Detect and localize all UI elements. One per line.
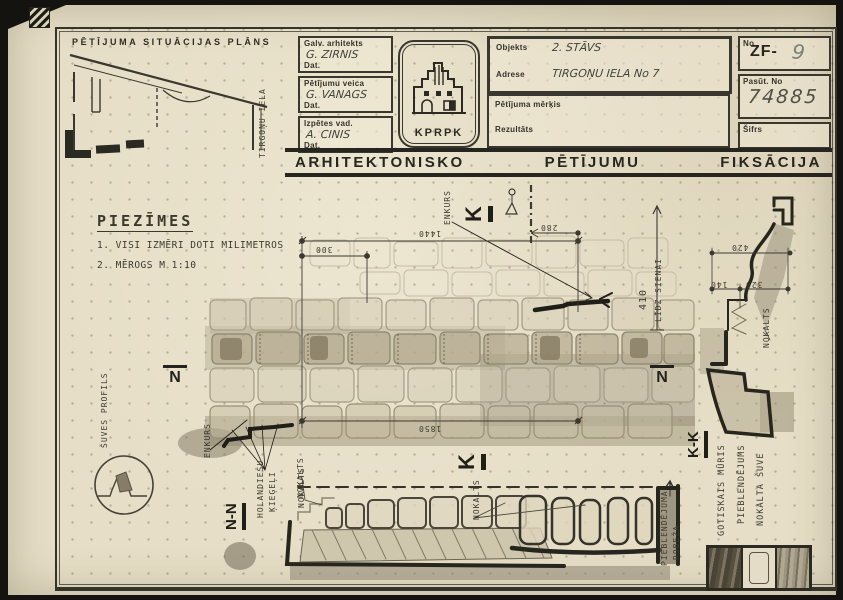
dim-300: 300 (315, 245, 332, 254)
signature-row: Pētījumu veica G. VANAGS Dat. (298, 76, 393, 113)
seam-profile-detail (95, 456, 153, 514)
banner-word: ARHITEKTONISKO (295, 154, 465, 171)
dim-420: 420 (731, 243, 748, 252)
legend-swatch-chiselled-seam (777, 548, 809, 588)
order-number-cell: Pasūt. No 74885 (738, 74, 831, 119)
robeza-label-line1: PIEBLENDĒJUMA (660, 490, 670, 566)
no-prefix: ZF- (750, 43, 778, 61)
dim-1440: 1440 (418, 229, 441, 238)
legend-box (706, 545, 812, 591)
pasut-value: 74885 (747, 86, 819, 108)
legend-label-infill: PIEBLENDĒJUMS (737, 444, 747, 524)
signature-role: Galv. arhitekts (304, 39, 387, 48)
logo-box: KPRPK (398, 40, 480, 148)
legend-label-chiselled-seam: NOKALTA ŠUVE (756, 453, 766, 526)
site-plan-title: PĒTĪJUMA SITUĀCIJAS PLĀNS (72, 37, 271, 47)
logo-text: KPRPK (400, 127, 478, 139)
legend-swatch-infill (743, 548, 777, 588)
rezultats-label: Rezultāts (495, 125, 533, 134)
number-block: No ZF- 9 Pasūt. No 74885 Šifrs (738, 36, 831, 149)
section-marker-kk: K-K (686, 431, 708, 458)
wall-dim-value: 410 (639, 289, 649, 310)
seam-profile-label: ŠUVES PROFILS (100, 372, 110, 448)
street-label: TIRGOŅU IELA (258, 88, 268, 158)
merkis-label: Pētījuma mērķis (495, 100, 561, 109)
section-marker-nn: N-N (224, 503, 246, 530)
holandiesu-label-line2: ĶIEĢEĻI (268, 471, 278, 512)
banner-word: PĒTĪJUMU (545, 154, 641, 171)
signature-name: G. VANAGS (305, 88, 367, 101)
date-label: Dat. (304, 101, 320, 110)
legend-swatch-gothic-wall (709, 548, 743, 588)
wall-dim-text: LĪDZ SIENAI (654, 258, 664, 322)
dim-1850: 1850 (418, 424, 441, 433)
adrese-label: Adrese (496, 70, 525, 79)
cipher-cell: Šifrs (738, 122, 831, 149)
section-marker-k-bottom: K (456, 454, 486, 470)
signature-role: Pētījumu veica (304, 79, 387, 88)
section-nn-drawing (224, 478, 678, 580)
nokalts-label-nn-mid: NOKALTS (472, 479, 482, 520)
banner-word: FIKSĀCIJA (720, 154, 822, 171)
dim-280: 280 (540, 223, 557, 232)
north-marker-left: N (163, 365, 187, 387)
signature-name: G. ZIRNIS (305, 48, 359, 61)
scanned-survey-sheet: PĒTĪJUMA SITUĀCIJAS PLĀNS TIRGOŅU IELA G… (0, 0, 843, 600)
building-icon (412, 51, 466, 117)
enkurs-label-left: ENKURS (203, 423, 213, 458)
enkurs-label-top: ENKURS (443, 190, 453, 225)
north-marker-right: N (650, 365, 674, 387)
purpose-box: Pētījuma mērķis Rezultāts (487, 94, 730, 148)
objekts-label: Objekts (496, 43, 527, 52)
sheet-number-cell: No ZF- 9 (738, 36, 831, 71)
registration-hatch-mark (29, 7, 50, 28)
plan-wall-fragments (65, 130, 144, 158)
signature-block: Galv. arhitekts G. ZIRNIS Dat. Pētījumu … (298, 36, 393, 156)
object-box: Objekts 2. STĀVS Adrese TIRGOŅU IELA No … (487, 36, 732, 94)
sifrs-label: Šifrs (743, 125, 762, 134)
date-label: Dat. (304, 61, 320, 70)
title-banner: ARHITEKTONISKO PĒTĪJUMU FIKSĀCIJA (285, 148, 832, 177)
elevation-sketch (210, 236, 694, 438)
signature-role: Izpētes vad. (304, 119, 387, 128)
legend-infill-stone-outline (749, 552, 769, 584)
dim-140: 140 (710, 280, 727, 289)
adrese-value: TIRGOŅU IELA No 7 (551, 67, 660, 80)
nokalts-label-nn-left: NOKALTS (297, 467, 307, 508)
legend-label-gothic-wall: GOTISKAIS MŪRIS (717, 444, 727, 536)
dim-320: 320 (745, 280, 762, 289)
robeza-label-line2: ROBEŽA (672, 525, 682, 560)
section-marker-k-top: K (463, 206, 493, 222)
signature-name: A. CINIS (305, 128, 350, 141)
pasut-label: Pasūt. No (743, 77, 783, 86)
no-value: 9 (791, 39, 807, 64)
section-kk-drawing (700, 198, 794, 436)
objekts-value: 2. STĀVS (551, 41, 601, 54)
signature-row: Galv. arhitekts G. ZIRNIS Dat. (298, 36, 393, 73)
nokalts-label-kk: NOKALTS (762, 307, 772, 348)
holandiesu-label-line1: HOLANDIEŠU (256, 460, 266, 518)
